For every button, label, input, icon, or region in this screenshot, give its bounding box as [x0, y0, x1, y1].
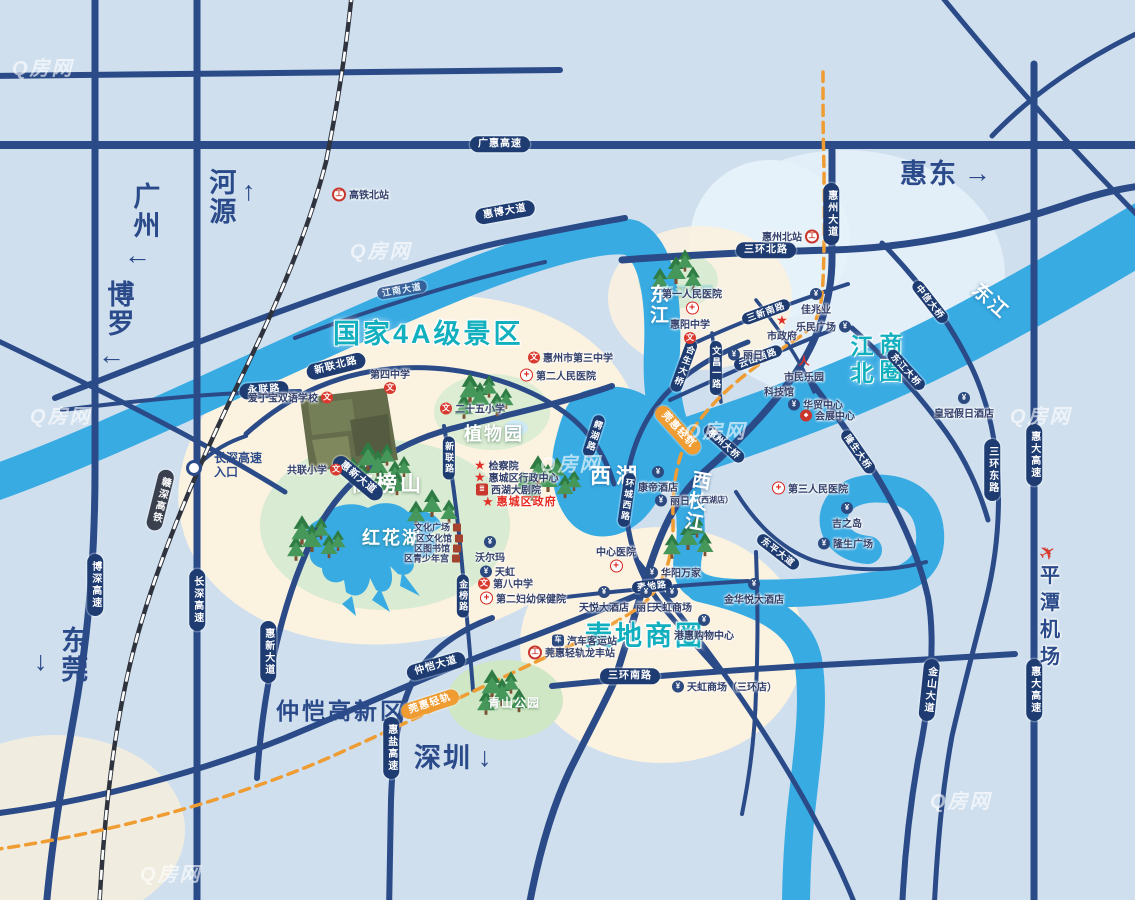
poi: ¥佳兆业: [801, 288, 831, 316]
poi-label: 丽日: [670, 493, 690, 508]
poi: +第三人民医院: [772, 481, 848, 496]
shop-icon: ¥: [652, 466, 664, 478]
shop-icon: ¥: [748, 578, 760, 590]
shop-icon: ¥: [958, 392, 970, 404]
poi-label: 第二妇幼保健院: [496, 591, 566, 606]
poi: 惠州北站工: [762, 229, 819, 244]
poi-label: 高铁北站: [349, 187, 389, 202]
hosp-icon: +: [772, 482, 785, 495]
watermark: Q房网: [1010, 400, 1072, 429]
school-icon: 文: [384, 382, 396, 394]
corner-label: 广州: [130, 182, 158, 240]
shop-icon: ¥: [810, 288, 822, 300]
watermark: Q房网: [685, 415, 747, 444]
poi-sublabel: （西湖店）: [693, 495, 733, 506]
shop-icon: ¥: [839, 320, 851, 332]
road-label: 文昌一路: [710, 341, 722, 395]
poi: ¥沃尔玛: [475, 536, 505, 564]
poi: ¥港惠购物中心: [674, 614, 734, 642]
poi: ¥天悦大酒店: [579, 586, 629, 614]
poi: 工高铁北站: [332, 187, 389, 202]
road-label: 东平大道: [754, 532, 801, 573]
corner-label: 河源: [206, 168, 234, 226]
direction-arrow: →: [964, 160, 991, 187]
poi: ¥天虹: [480, 564, 515, 579]
poi-label: 丽日: [743, 347, 763, 362]
direction-arrow: ↑: [242, 178, 256, 205]
expo-icon: ◆: [800, 409, 812, 421]
shop-icon: ¥: [818, 537, 830, 549]
road-label: 隆生大桥: [839, 428, 878, 476]
poi-label: 平潭机场: [1034, 565, 1063, 673]
road-label: 三环东路: [984, 439, 1000, 501]
poi-label: 市民乐园: [784, 369, 824, 384]
road-label: 惠盐高速: [383, 717, 399, 779]
school-icon: 文: [440, 402, 452, 414]
road-label: 仲恺大道: [405, 650, 467, 681]
area-label: 国家4A级景区: [333, 312, 524, 351]
poi-label: 区青少年宫: [404, 552, 449, 565]
road-label: 赣深高铁: [145, 468, 175, 532]
poi: +第二人民医院: [520, 368, 596, 383]
shop-icon: ¥: [480, 565, 492, 577]
poi-label: 会展中心: [815, 408, 855, 423]
poi: ¥天虹商场: [652, 586, 692, 614]
watermark: Q房网: [930, 785, 992, 814]
poi: 文二十五小学: [440, 401, 505, 416]
poi-label: 港惠购物中心: [674, 627, 734, 642]
star-icon: ★: [482, 495, 494, 508]
poi: 文第四中学: [370, 366, 410, 394]
corner-label: 惠东: [900, 160, 958, 188]
poi-label: 第三人民医院: [788, 481, 848, 496]
bldg-icon: [453, 523, 461, 531]
poi-label: 佳兆业: [801, 301, 831, 316]
poi-label: 吉之岛: [832, 515, 862, 530]
watermark: Q房网: [350, 235, 412, 264]
poi: ¥吉之岛: [832, 502, 862, 530]
hosp-icon: +: [480, 592, 493, 605]
road-label: 新联路: [443, 437, 455, 480]
road-label: 中信大桥: [910, 278, 951, 325]
poi: ¥康帝酒店: [638, 466, 678, 494]
watermark: Q房网: [12, 52, 74, 81]
hosp-icon: +: [686, 302, 699, 315]
shop-icon: ¥: [841, 502, 853, 514]
area-label: 红花湖: [362, 524, 422, 550]
poi: ◆会展中心: [800, 408, 855, 423]
poi: ¥丽日: [728, 347, 763, 362]
shop-icon: ¥: [640, 586, 652, 598]
poi-label: 惠州北站: [762, 229, 802, 244]
shop-icon: ¥: [788, 398, 800, 410]
poi: 区青少年宫: [404, 552, 460, 565]
expressway-entrance-icon: [186, 460, 202, 476]
shop-icon: ¥: [655, 494, 667, 506]
road-label: 惠州大道: [823, 183, 839, 245]
sport-icon: 人: [799, 357, 810, 368]
road-label: 三环北路: [736, 242, 796, 258]
road-label: 惠大高速: [1026, 424, 1042, 486]
poi-label: 莞惠轻轨龙丰站: [545, 645, 615, 660]
map-canvas: 广州←河源↑博罗←东莞↓惠东→深圳↓国家4A级景区麦地商圈江北商圈仲恺高新区西湖…: [0, 0, 1135, 900]
shop-icon: ¥: [672, 680, 684, 692]
poi-label: 惠阳中学: [670, 316, 710, 331]
school-icon: 文: [478, 577, 490, 589]
poi: ¥天虹商场（三环店）: [672, 679, 777, 694]
poi-label: 共联小学: [287, 462, 327, 477]
road-label: 广惠高速: [470, 136, 530, 152]
entrance-line2: 入口: [214, 466, 262, 480]
area-label: 植物园: [464, 420, 524, 446]
poi: 文惠阳中学: [670, 316, 710, 344]
shop-icon: ¥: [666, 586, 678, 598]
watermark: Q房网: [140, 858, 202, 887]
watermark: Q房网: [30, 400, 92, 429]
poi: 人市民乐园: [784, 357, 824, 384]
poi-label: 惠城区政府: [497, 493, 557, 509]
expressway-entrance-label: 长深高速入口: [214, 452, 262, 480]
school-icon: 文: [528, 351, 540, 363]
poi-label: 天虹商场: [652, 599, 692, 614]
road-label: 金山大道: [918, 658, 940, 721]
plane-icon: ✈: [1036, 541, 1061, 567]
poi: +中心医院: [596, 544, 636, 573]
poi: ★惠城区政府: [482, 493, 557, 509]
road-label: 惠博大道: [474, 199, 536, 225]
poi: ¥隆生广场: [818, 536, 873, 551]
area-label: 东江: [967, 276, 1016, 324]
poi: 乐民广场¥: [796, 319, 851, 334]
map-labels: 广州←河源↑博罗←东莞↓惠东→深圳↓国家4A级景区麦地商圈江北商圈仲恺高新区西湖…: [0, 0, 1135, 900]
school-icon: 文: [330, 463, 342, 475]
poi: ★市政府: [767, 314, 797, 343]
direction-arrow: ←: [98, 342, 125, 369]
road-label: 江南大道: [376, 280, 427, 301]
poi: +第一人民医院: [662, 286, 722, 315]
poi: 工莞惠轻轨龙丰站: [528, 645, 615, 660]
road-label: 三环南路: [600, 668, 660, 684]
rail-icon: 工: [528, 645, 542, 659]
poi-label: 惠州市第三中学: [543, 350, 613, 365]
direction-arrow: ↓: [478, 744, 492, 771]
poi: ✈平潭机场: [1034, 544, 1063, 673]
poi-label: 华阳万家: [661, 565, 701, 580]
poi-label: 第四中学: [370, 366, 410, 381]
rail-icon: 工: [805, 229, 819, 243]
poi-label: 皇冠假日酒店: [934, 405, 994, 420]
hosp-icon: +: [610, 560, 623, 573]
corner-label: 东莞: [58, 626, 86, 684]
poi-label: 隆生广场: [833, 536, 873, 551]
rail-icon: 工: [332, 187, 346, 201]
poi: ¥华阳万家: [646, 565, 701, 580]
school-icon: 文: [684, 332, 696, 344]
poi: 爱丁宝双语学校文: [248, 390, 333, 405]
poi-label: 第二人民医院: [536, 368, 596, 383]
poi: 文惠州市第三中学: [528, 350, 613, 365]
poi-label: 乐民广场: [796, 319, 836, 334]
poi: ¥金华悦大酒店: [724, 578, 784, 606]
shop-icon: ¥: [598, 586, 610, 598]
road-label: 惠新大道: [260, 621, 276, 683]
poi-label: 沃尔玛: [475, 549, 505, 564]
bldg-icon: [452, 554, 460, 562]
direction-arrow: ←: [124, 242, 151, 269]
watermark: Q房网: [540, 448, 602, 477]
area-label: 青山公园: [488, 694, 540, 711]
corner-label: 深圳: [414, 744, 472, 772]
road-label: 新联北路: [305, 351, 367, 381]
poi-label: 中心医院: [596, 544, 636, 559]
shop-icon: ¥: [646, 566, 658, 578]
poi: 共联小学文: [287, 462, 342, 477]
school-icon: 文: [321, 391, 333, 403]
poi-label: 金华悦大酒店: [724, 591, 784, 606]
poi: ¥丽日（西湖店）: [655, 493, 733, 508]
road-label: 合生大桥: [669, 339, 699, 394]
poi-label: 天虹商场（三环店）: [687, 679, 777, 694]
shop-icon: ¥: [484, 536, 496, 548]
poi-label: 天悦大酒店: [579, 599, 629, 614]
shop-icon: ¥: [728, 348, 740, 360]
poi: ¥皇冠假日酒店: [934, 392, 994, 420]
road-label: 长深高速: [189, 569, 205, 631]
poi-label: 二十五小学: [455, 401, 505, 416]
poi-label: 天虹: [495, 564, 515, 579]
poi-label: 爱丁宝双语学校: [248, 390, 318, 405]
road-label: 莞惠轻轨: [399, 687, 461, 720]
poi-label: 市政府: [767, 328, 797, 343]
star-icon: ★: [776, 314, 788, 327]
road-label: 金榜路: [457, 575, 469, 618]
road-label: 博深高速: [87, 554, 103, 616]
shop-icon: ¥: [698, 614, 710, 626]
poi: +第二妇幼保健院: [480, 591, 566, 606]
direction-arrow: ↓: [34, 648, 48, 675]
corner-label: 博罗: [104, 280, 132, 338]
poi-label: 第一人民医院: [662, 286, 722, 301]
entrance-line1: 长深高速: [214, 452, 262, 466]
hosp-icon: +: [520, 369, 533, 382]
